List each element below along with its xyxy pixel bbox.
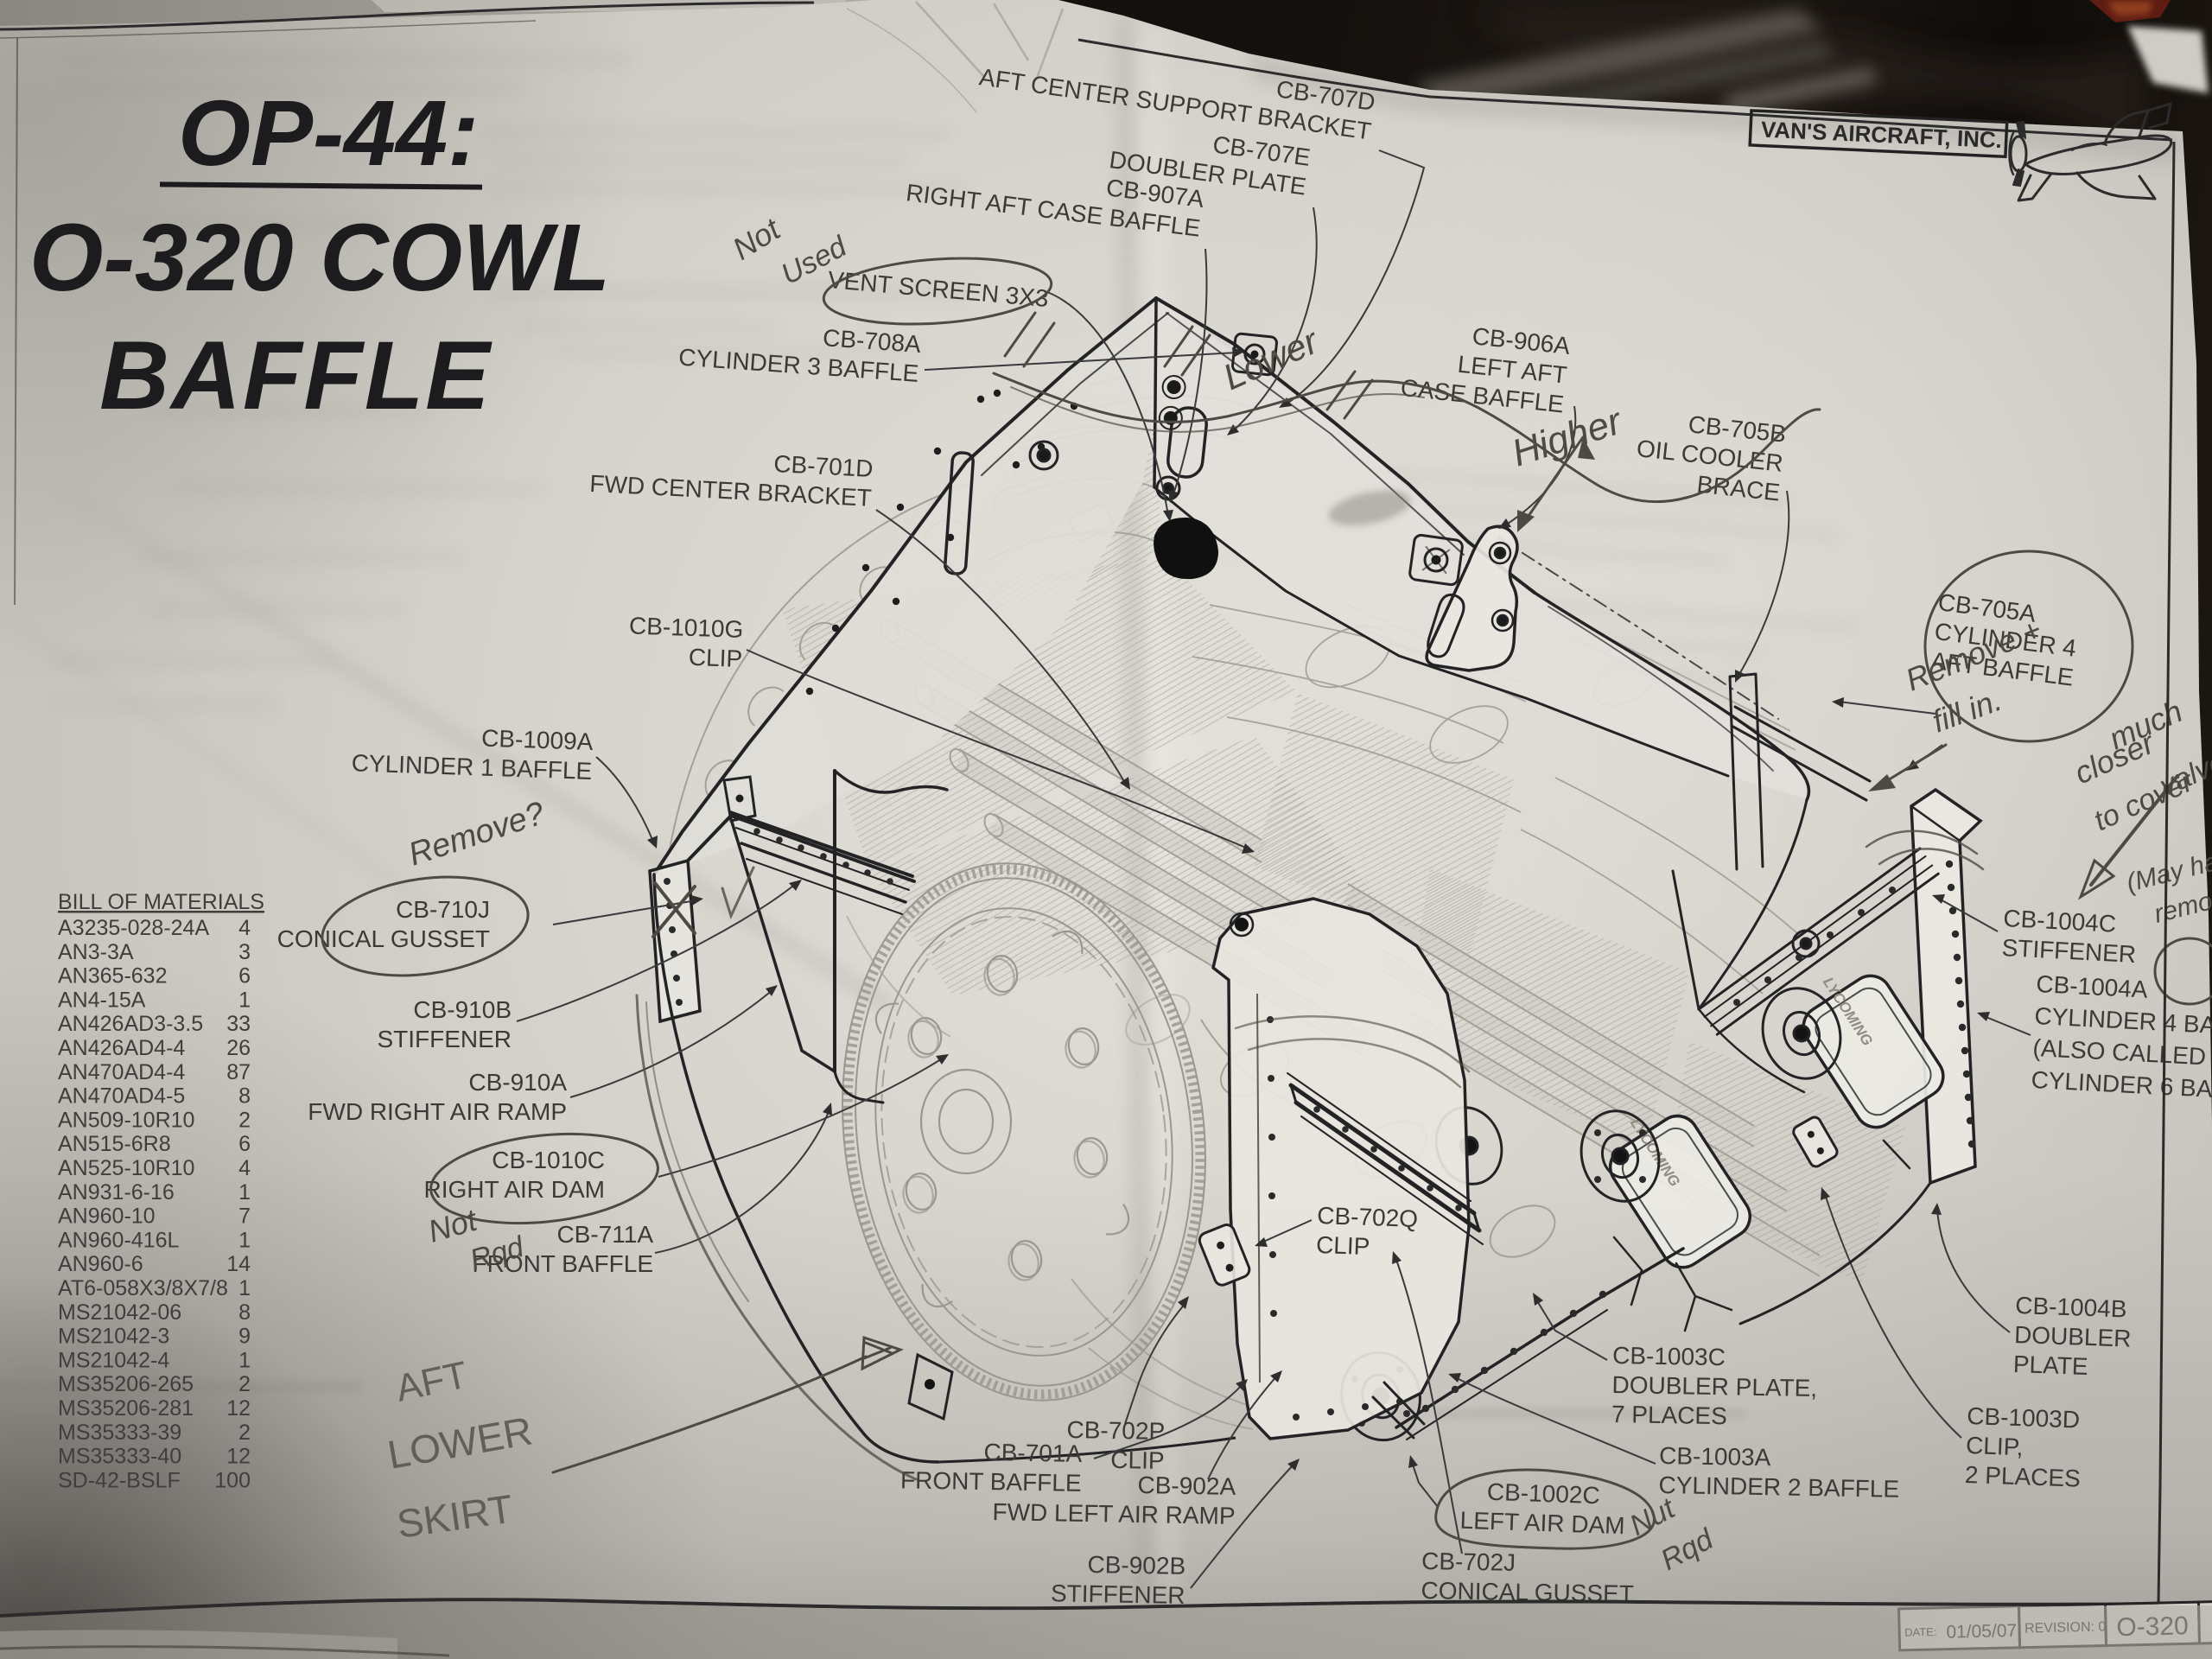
svg-text:2: 2: [238, 1372, 251, 1396]
svg-text:14: 14: [226, 1252, 251, 1276]
svg-text:MS21042-4: MS21042-4: [58, 1348, 169, 1372]
svg-text:MS21042-06: MS21042-06: [58, 1300, 181, 1325]
svg-text:AN509-10R10: AN509-10R10: [58, 1108, 194, 1132]
svg-text:AN365-632: AN365-632: [58, 964, 167, 988]
svg-text:OP-44:: OP-44:: [178, 80, 479, 185]
svg-text:MS35333-39: MS35333-39: [58, 1421, 181, 1445]
svg-text:BILL OF MATERIALS: BILL OF MATERIALS: [58, 890, 264, 914]
svg-text:33: 33: [226, 1012, 251, 1036]
svg-text:1: 1: [238, 1228, 251, 1252]
svg-text:2: 2: [238, 1108, 251, 1132]
svg-text:8: 8: [238, 1084, 251, 1109]
svg-text:1: 1: [238, 1348, 251, 1372]
svg-text:MS35206-281: MS35206-281: [58, 1396, 194, 1421]
svg-text:1: 1: [238, 988, 251, 1012]
svg-text:AN515-6R8: AN515-6R8: [58, 1132, 171, 1156]
svg-text:7: 7: [238, 1205, 251, 1229]
svg-text:MS21042-3: MS21042-3: [58, 1325, 169, 1349]
svg-text:2: 2: [238, 1421, 251, 1445]
svg-text:26: 26: [226, 1036, 251, 1060]
svg-text:AN960-10: AN960-10: [58, 1205, 156, 1229]
svg-text:3: 3: [238, 940, 251, 964]
svg-text:AN960-6: AN960-6: [58, 1252, 143, 1276]
svg-text:AN960-416L: AN960-416L: [58, 1228, 179, 1252]
svg-text:AN426AD4-4: AN426AD4-4: [58, 1036, 185, 1060]
svg-text:6: 6: [238, 1132, 251, 1156]
svg-text:O-320 COWL: O-320 COWL: [29, 205, 610, 311]
svg-text:87: 87: [226, 1060, 251, 1084]
svg-text:BAFFLE: BAFFLE: [99, 321, 493, 429]
svg-text:4: 4: [238, 916, 251, 940]
svg-text:AN525-10R10: AN525-10R10: [58, 1156, 194, 1180]
svg-text:A3235-028-24A: A3235-028-24A: [58, 916, 209, 940]
svg-text:100: 100: [214, 1468, 251, 1492]
svg-text:MS35333-40: MS35333-40: [58, 1445, 181, 1469]
svg-text:8: 8: [238, 1300, 251, 1325]
svg-text:AN426AD3-3.5: AN426AD3-3.5: [58, 1012, 203, 1036]
svg-text:AN4-15A: AN4-15A: [58, 988, 146, 1012]
svg-text:12: 12: [226, 1396, 251, 1421]
svg-text:12: 12: [226, 1445, 251, 1469]
svg-text:AN3-3A: AN3-3A: [58, 940, 134, 964]
svg-text:AT6-058X3/8X7/8: AT6-058X3/8X7/8: [58, 1276, 228, 1300]
svg-text:SD-42-BSLF: SD-42-BSLF: [58, 1468, 181, 1492]
svg-text:1: 1: [238, 1180, 251, 1205]
svg-text:AN931-6-16: AN931-6-16: [58, 1180, 175, 1205]
svg-text:AN470AD4-5: AN470AD4-5: [58, 1084, 185, 1109]
svg-text:6: 6: [238, 964, 251, 988]
svg-text:MS35206-265: MS35206-265: [58, 1372, 194, 1396]
svg-text:AN470AD4-4: AN470AD4-4: [58, 1060, 185, 1084]
svg-text:9: 9: [238, 1325, 251, 1349]
svg-text:4: 4: [238, 1156, 251, 1180]
svg-text:1: 1: [238, 1276, 251, 1300]
